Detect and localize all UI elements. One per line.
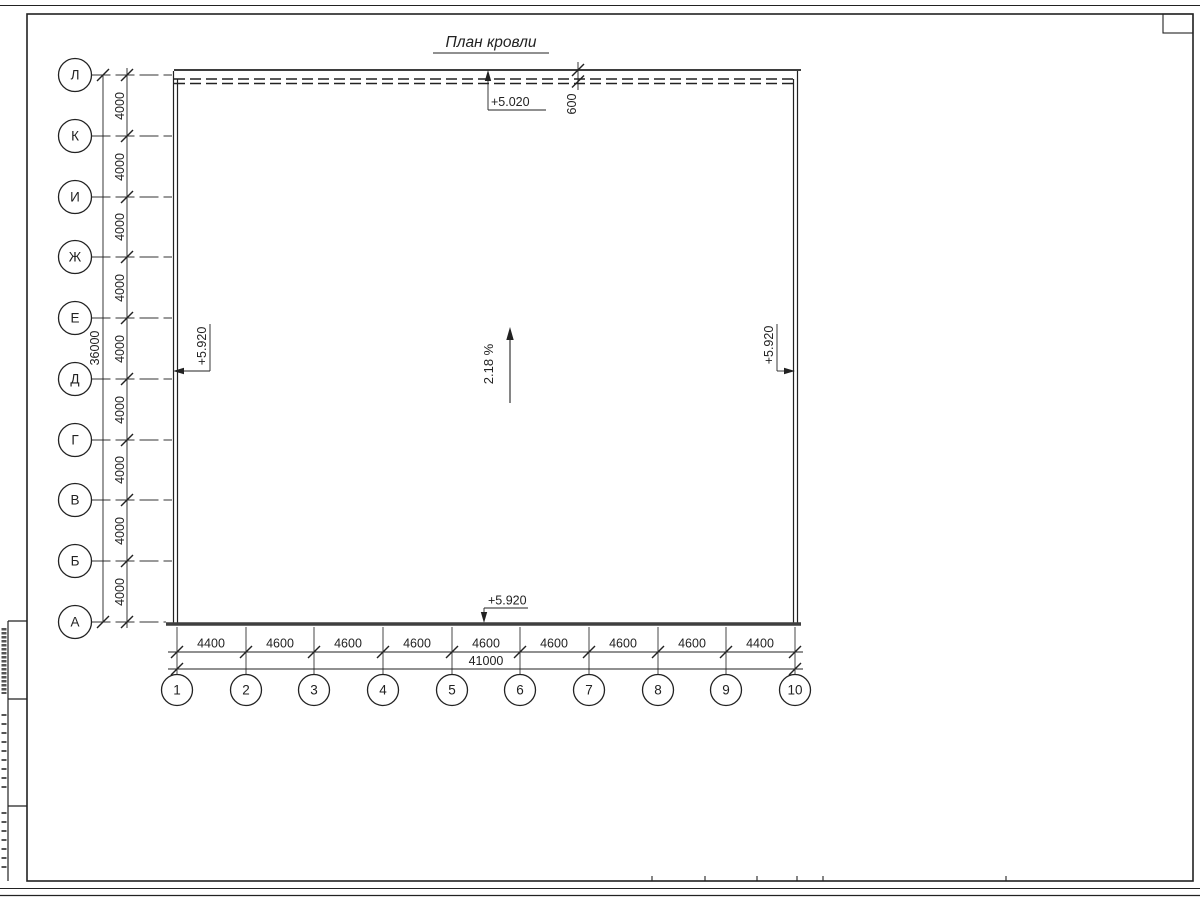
left-seg-dim: 4000 bbox=[113, 456, 127, 484]
elevation-top: +5.020 bbox=[485, 70, 546, 110]
bottom-seg-dim: 4600 bbox=[540, 637, 568, 651]
row-grid-lines bbox=[92, 75, 173, 622]
arrow-left-icon bbox=[173, 368, 184, 374]
left-seg-dim: 4000 bbox=[113, 335, 127, 363]
bottom-seg-dim: 4400 bbox=[197, 637, 225, 651]
col-axis-label: 3 bbox=[310, 683, 318, 698]
sheet-frame bbox=[0, 6, 1200, 896]
left-seg-dim: 4000 bbox=[113, 517, 127, 545]
row-axis-label: Д bbox=[70, 372, 79, 387]
elevation-left: +5.920 bbox=[173, 324, 210, 374]
overhang-dim-value: 600 bbox=[565, 94, 579, 115]
row-axis-label: А bbox=[70, 615, 79, 630]
left-seg-dim: 4000 bbox=[113, 92, 127, 120]
left-seg-dim: 4000 bbox=[113, 213, 127, 241]
left-seg-dim: 4000 bbox=[113, 396, 127, 424]
row-axis-label: Б bbox=[71, 554, 80, 569]
col-axis-label: 9 bbox=[722, 683, 730, 698]
arrow-down-icon bbox=[481, 612, 487, 623]
slope-annotation: 2.18 % bbox=[481, 327, 514, 403]
col-axis-bubbles bbox=[162, 675, 811, 706]
elevation-top-value: +5.020 bbox=[491, 95, 530, 109]
col-axis-label: 2 bbox=[242, 683, 250, 698]
row-axis-label: В bbox=[70, 493, 79, 508]
col-axis-label: 1 bbox=[173, 683, 181, 698]
row-axis-label: Г bbox=[71, 433, 79, 448]
left-total-dim: 36000 bbox=[88, 331, 102, 366]
bottom-seg-dim: 4600 bbox=[609, 637, 637, 651]
arrow-up-icon bbox=[506, 327, 513, 340]
left-dimension-labels: 36000 4000 4000 4000 4000 4000 4000 4000… bbox=[88, 92, 127, 606]
left-seg-dim: 4000 bbox=[113, 153, 127, 181]
elevation-right: +5.920 bbox=[762, 324, 795, 374]
col-axis-label: 10 bbox=[787, 683, 802, 698]
col-axis-label: 4 bbox=[379, 683, 387, 698]
elevation-left-value: +5.920 bbox=[195, 327, 209, 366]
col-axis-label: 6 bbox=[516, 683, 524, 698]
left-seg-dim: 4000 bbox=[113, 578, 127, 606]
col-axis-labels: 1 2 3 4 5 6 7 8 9 10 bbox=[173, 683, 802, 698]
elevation-bottom: +5.920 bbox=[481, 594, 528, 624]
drawing-title: План кровли bbox=[433, 34, 549, 53]
bottom-seg-dim: 4600 bbox=[678, 637, 706, 651]
bottom-seg-dim: 4600 bbox=[472, 637, 500, 651]
drawing-sheet: План кровли Л bbox=[0, 0, 1200, 900]
elevation-bottom-value: +5.920 bbox=[488, 594, 527, 608]
row-axis-label: Л bbox=[71, 68, 80, 83]
arrow-up-icon bbox=[485, 70, 491, 81]
row-axis-bubbles bbox=[59, 59, 92, 639]
bottom-seg-dim: 4600 bbox=[266, 637, 294, 651]
bottom-seg-dim: 4600 bbox=[403, 637, 431, 651]
row-axis-label: Ж bbox=[69, 250, 82, 265]
drawing-frame bbox=[27, 14, 1193, 881]
row-axis-label: Е bbox=[70, 311, 79, 326]
slope-value: 2.18 % bbox=[481, 343, 496, 384]
corner-stamp-box bbox=[1163, 14, 1193, 33]
col-axis-label: 5 bbox=[448, 683, 456, 698]
bottom-seg-dim: 4600 bbox=[334, 637, 362, 651]
row-axis-label: И bbox=[70, 190, 80, 205]
col-axis-label: 7 bbox=[585, 683, 593, 698]
bottom-total-dim: 41000 bbox=[469, 654, 504, 668]
col-axis-label: 8 bbox=[654, 683, 662, 698]
elevation-right-value: +5.920 bbox=[762, 326, 776, 365]
bottom-seg-dim: 4400 bbox=[746, 637, 774, 651]
row-axis-label: К bbox=[71, 129, 79, 144]
title-text: План кровли bbox=[446, 34, 537, 51]
left-seg-dim: 4000 bbox=[113, 274, 127, 302]
